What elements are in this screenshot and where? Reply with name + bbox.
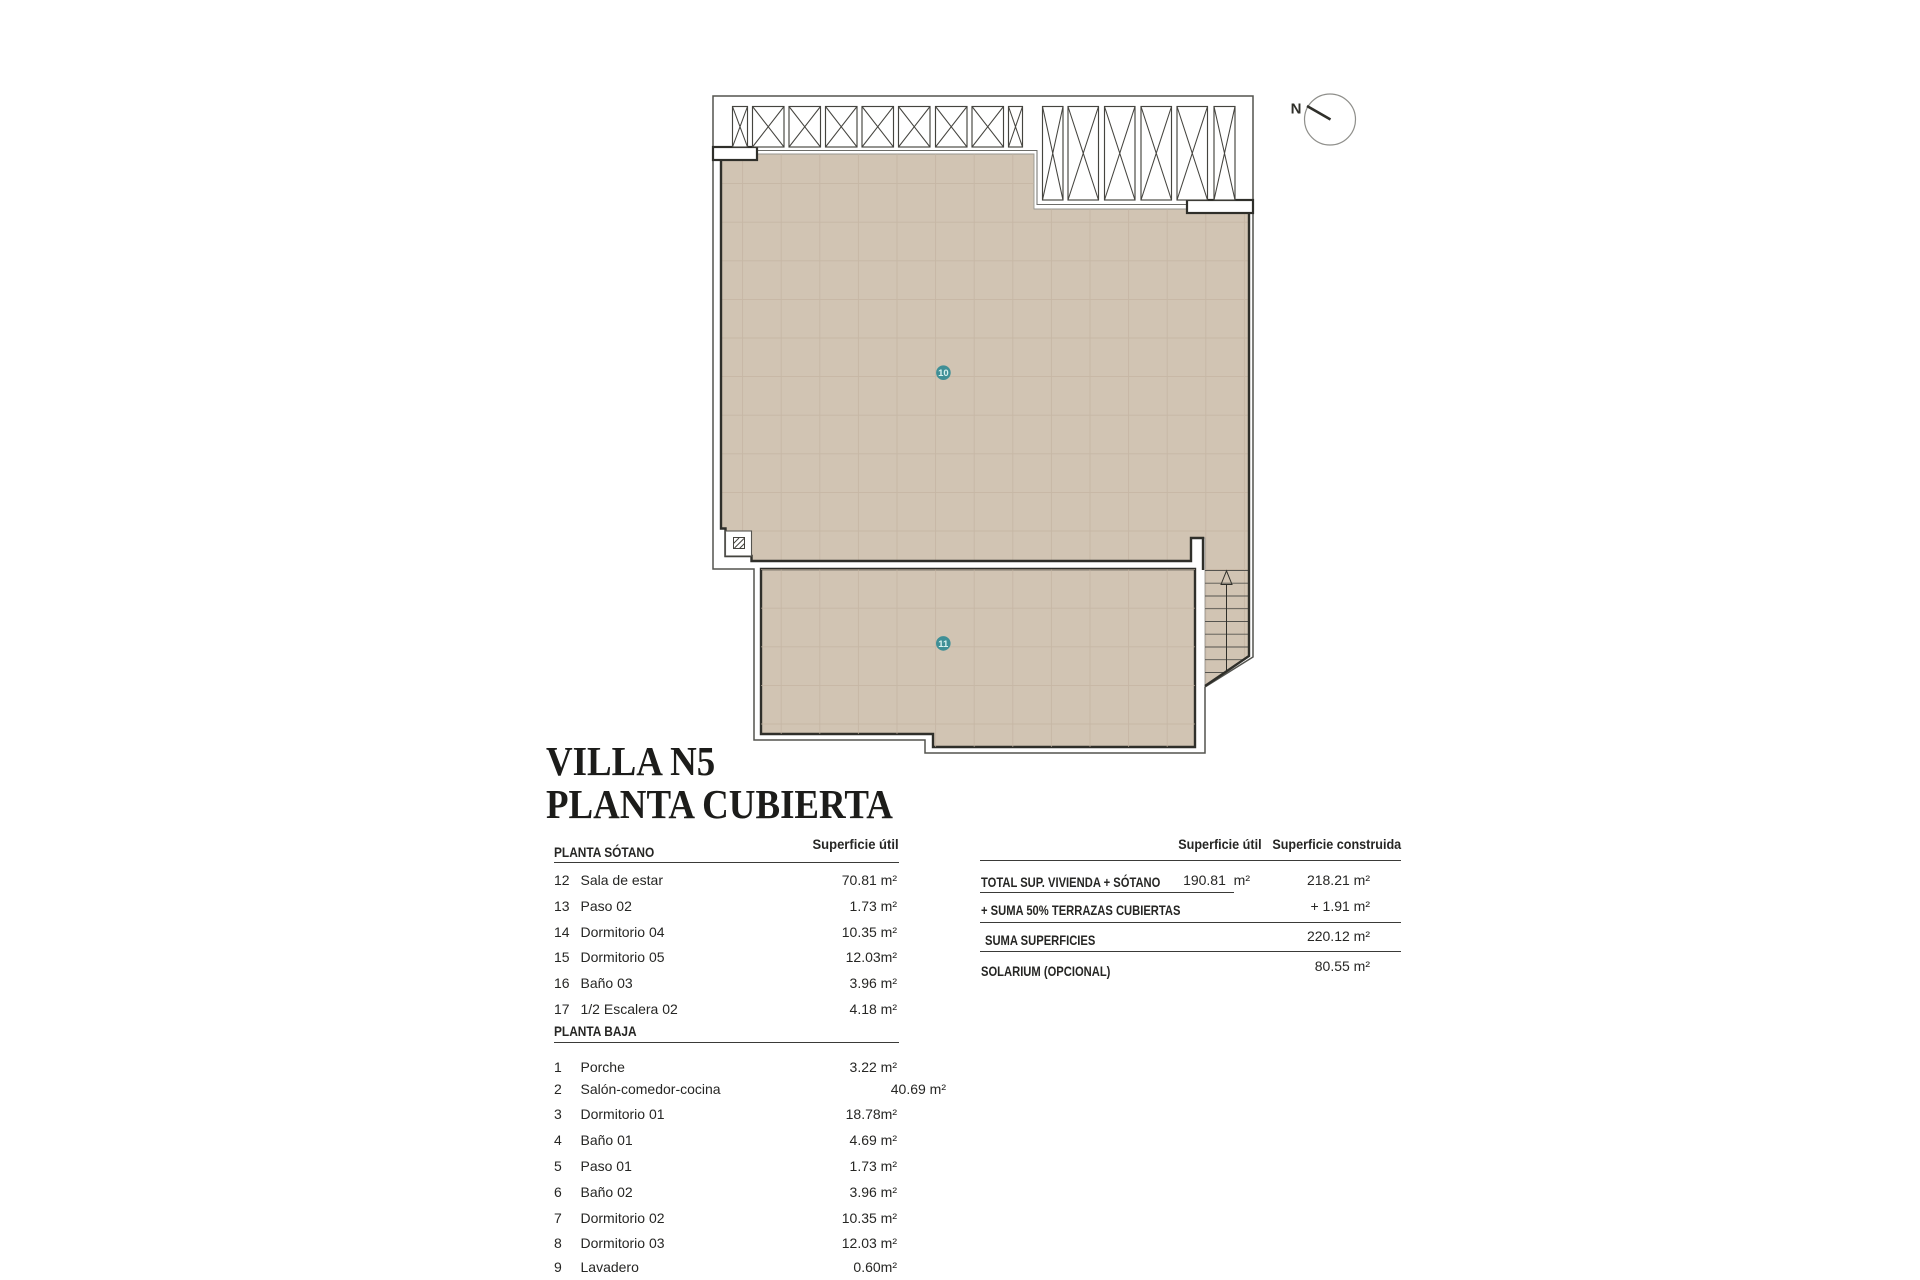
svg-text:N: N (1291, 101, 1302, 118)
svg-text:10: 10 (938, 368, 949, 379)
svg-text:11: 11 (938, 639, 949, 650)
